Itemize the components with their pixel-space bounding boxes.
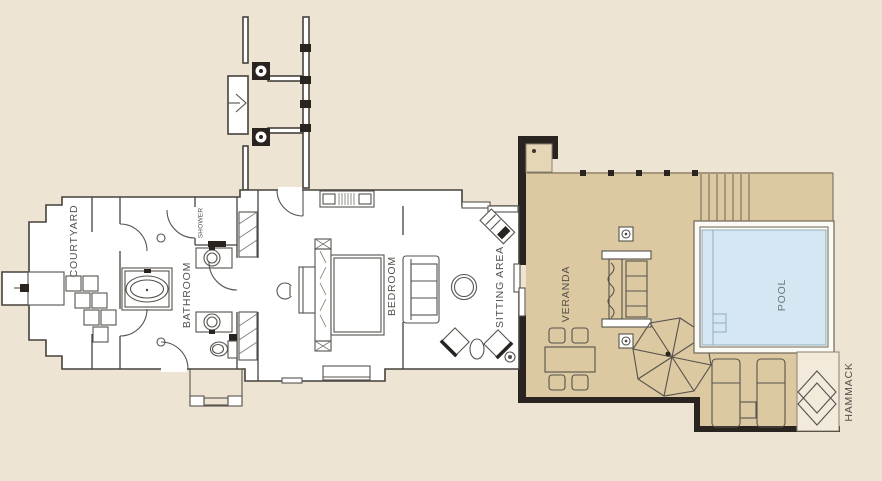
pool-label: POOL [776,279,788,311]
side-table-oval [470,339,484,359]
entrance-gate [228,76,248,134]
bedroom-label: BEDROOM [386,256,398,316]
threshold [282,378,302,383]
tub-faucet [144,269,151,273]
courtyard-label: COURTYARD [68,205,80,278]
bedside-bench [299,267,315,313]
pool-water [702,230,826,345]
gate-post-top [252,62,270,80]
floor-plan: COURTYARD BATHROOM SHOWER [0,0,882,481]
veranda-label: VERANDA [560,266,572,322]
gate-post-bottom [252,128,270,146]
bathroom-label: BATHROOM [181,262,193,328]
deck-post-bottom [619,334,633,348]
console-cabinet [323,366,370,380]
pool: POOL [694,221,834,353]
wardrobe-unit [320,191,374,207]
entry-door-gap [278,187,302,193]
floor-plan-canvas: COURTYARD BATHROOM SHOWER [0,0,882,481]
hammock-nook [797,352,839,431]
hammack-label: HAMMACK [843,362,855,421]
sitting-area-label: SITTING AREA [494,246,506,328]
porch-door-gap [161,366,187,372]
deck-corner-room [526,144,552,172]
shower-label: SHOWER [198,208,205,239]
sofa [403,256,439,323]
deck-post-top [619,227,633,241]
